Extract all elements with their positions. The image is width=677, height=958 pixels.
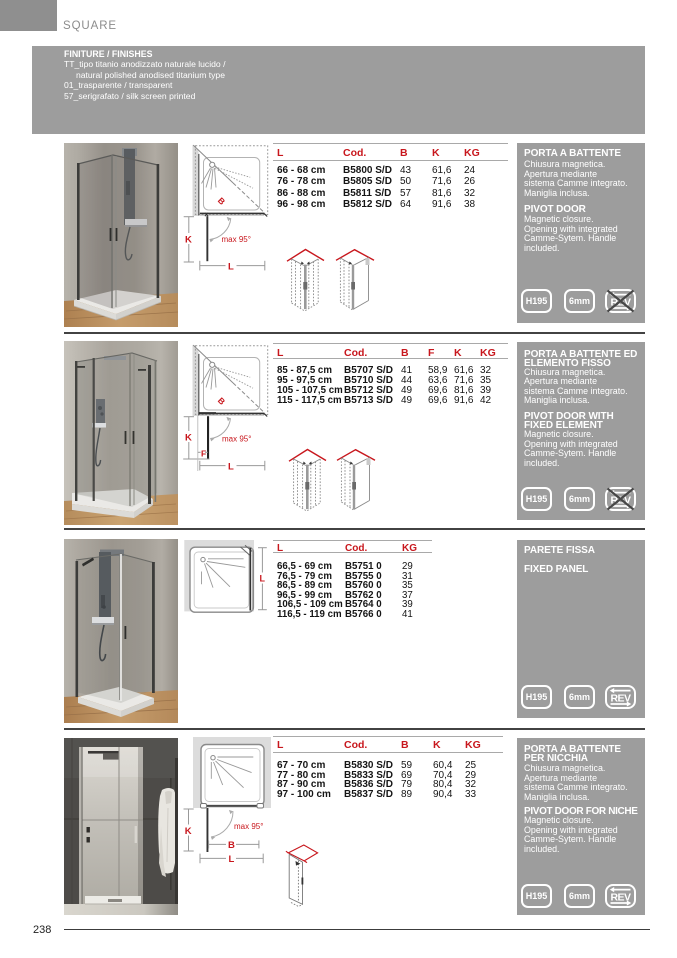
- svg-text:K: K: [185, 235, 192, 246]
- svg-text:B: B: [216, 195, 227, 206]
- svg-text:F: F: [201, 448, 206, 458]
- svg-text:L: L: [228, 262, 234, 273]
- svg-text:max 95°: max 95°: [222, 435, 251, 444]
- svg-text:L: L: [229, 854, 235, 865]
- svg-text:L: L: [228, 462, 234, 473]
- svg-text:B: B: [216, 395, 227, 406]
- svg-text:B: B: [228, 840, 235, 851]
- svg-text:K: K: [185, 826, 192, 837]
- svg-text:K: K: [185, 433, 192, 444]
- svg-text:max 95°: max 95°: [222, 235, 251, 244]
- svg-text:L: L: [260, 574, 266, 584]
- svg-text:max 95°: max 95°: [234, 822, 263, 831]
